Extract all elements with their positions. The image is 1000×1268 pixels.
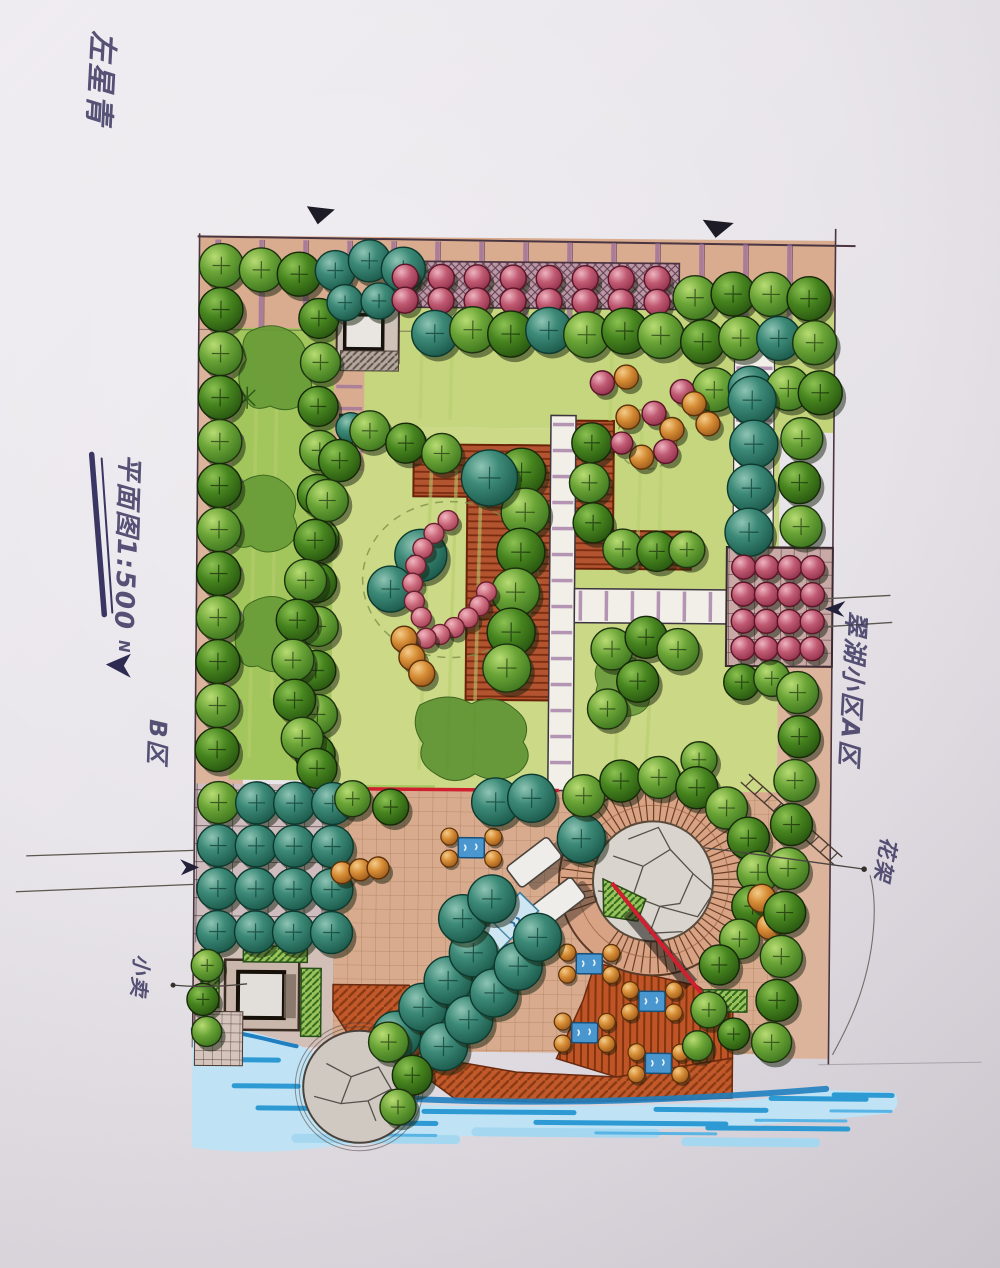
kiosk-label: 小卖 xyxy=(125,953,158,999)
plan-scale-label: 平面图1:500 xyxy=(107,454,150,632)
signature: 左星青 xyxy=(79,30,128,128)
pergola-leader-curve xyxy=(832,875,874,1055)
green-tree xyxy=(778,461,824,508)
hedge-strip xyxy=(301,968,322,1036)
paper-background: 左星青 平面图1:500 N B区 翠湖小区A区 花架 小卖 xyxy=(0,0,1000,1268)
entry-marker-icon xyxy=(307,206,335,224)
entry-marker-icon xyxy=(703,220,734,238)
west-road-lines xyxy=(16,849,194,894)
green-tree xyxy=(780,505,826,552)
zone-b-label: B区 xyxy=(141,719,178,766)
shrub-mass xyxy=(415,697,529,782)
north-label: N xyxy=(115,640,133,655)
north-arrow-icon xyxy=(106,654,131,678)
